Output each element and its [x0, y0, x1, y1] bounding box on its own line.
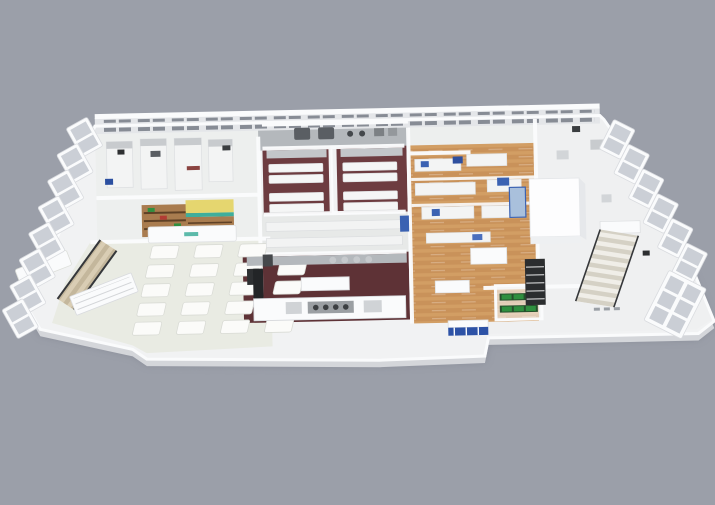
- kiosk-canopy: [185, 199, 233, 213]
- bench: [422, 206, 474, 219]
- lab-bench-top: [106, 141, 132, 149]
- lab-bench-top: [174, 138, 201, 146]
- lab-equipment: [222, 145, 230, 150]
- blue-instrument: [472, 234, 482, 240]
- blue-instrument: [421, 161, 429, 167]
- equipment: [643, 251, 650, 256]
- table: [264, 319, 294, 333]
- lab-bench-top: [140, 139, 166, 147]
- bench: [415, 182, 475, 195]
- island-counter: [301, 277, 349, 291]
- table: [136, 303, 166, 317]
- wood-zone-backstrip: [408, 125, 535, 146]
- facility-3d-render: 3D isometric cutaway rendering of a sing…: [0, 0, 715, 505]
- bench: [270, 203, 324, 212]
- produce: [148, 208, 155, 212]
- render-canvas: 3D isometric cutaway rendering of a sing…: [0, 0, 715, 505]
- table: [189, 264, 219, 278]
- bench: [344, 202, 398, 211]
- produce: [160, 216, 167, 220]
- blue-instrument: [453, 156, 463, 163]
- lab-bench: [140, 139, 167, 190]
- table: [185, 283, 215, 297]
- red-sign: [187, 166, 200, 170]
- table: [149, 245, 179, 259]
- bench: [343, 162, 397, 171]
- table: [176, 321, 206, 335]
- machine: [374, 128, 384, 136]
- floor-mark: [594, 308, 600, 311]
- lab-bench: [174, 138, 202, 191]
- floor-mark: [614, 307, 620, 310]
- dark-doorway: [253, 269, 264, 301]
- wall-counter: [340, 148, 402, 157]
- prep-station: [364, 300, 382, 312]
- wall-counter: [266, 149, 326, 158]
- equipment: [601, 194, 611, 202]
- corridor-floor: [260, 212, 409, 255]
- bench: [467, 153, 507, 166]
- blue-instrument: [497, 177, 509, 185]
- table: [132, 322, 162, 336]
- floor-mark: [604, 307, 610, 310]
- table: [141, 284, 171, 298]
- lab-equipment: [117, 149, 124, 154]
- blue-instrument: [432, 209, 440, 216]
- kiosk-sign: [184, 232, 198, 236]
- equipment: [572, 126, 580, 132]
- bench: [343, 173, 397, 182]
- blue-sign: [105, 179, 113, 185]
- table: [224, 301, 254, 315]
- bench: [269, 174, 323, 183]
- fume-hood: [318, 127, 334, 139]
- dark-storage-rack: [525, 259, 546, 305]
- blue-front-bench: [448, 320, 488, 336]
- table: [220, 320, 250, 334]
- building: Rear wall with paired windows White labo…: [0, 101, 715, 375]
- blue-machine: [509, 187, 526, 217]
- oven: [263, 254, 273, 266]
- prep-station: [286, 302, 302, 314]
- table: [180, 302, 210, 316]
- equipment: [557, 150, 569, 159]
- white-table: [471, 248, 507, 265]
- bench: [343, 191, 397, 200]
- lab-equipment: [150, 151, 160, 157]
- robot-arm: [400, 216, 409, 232]
- table: [273, 281, 303, 295]
- bench: [269, 192, 323, 201]
- sofa: [435, 280, 469, 293]
- table: [193, 244, 223, 258]
- fume-hood: [294, 128, 310, 140]
- machine: [388, 128, 397, 136]
- kiosk: Retail shelving kiosk with yellow canopy…: [141, 199, 236, 243]
- bench: [269, 163, 323, 172]
- table: [145, 264, 175, 278]
- core-block: White elevator / service core block: [529, 178, 586, 244]
